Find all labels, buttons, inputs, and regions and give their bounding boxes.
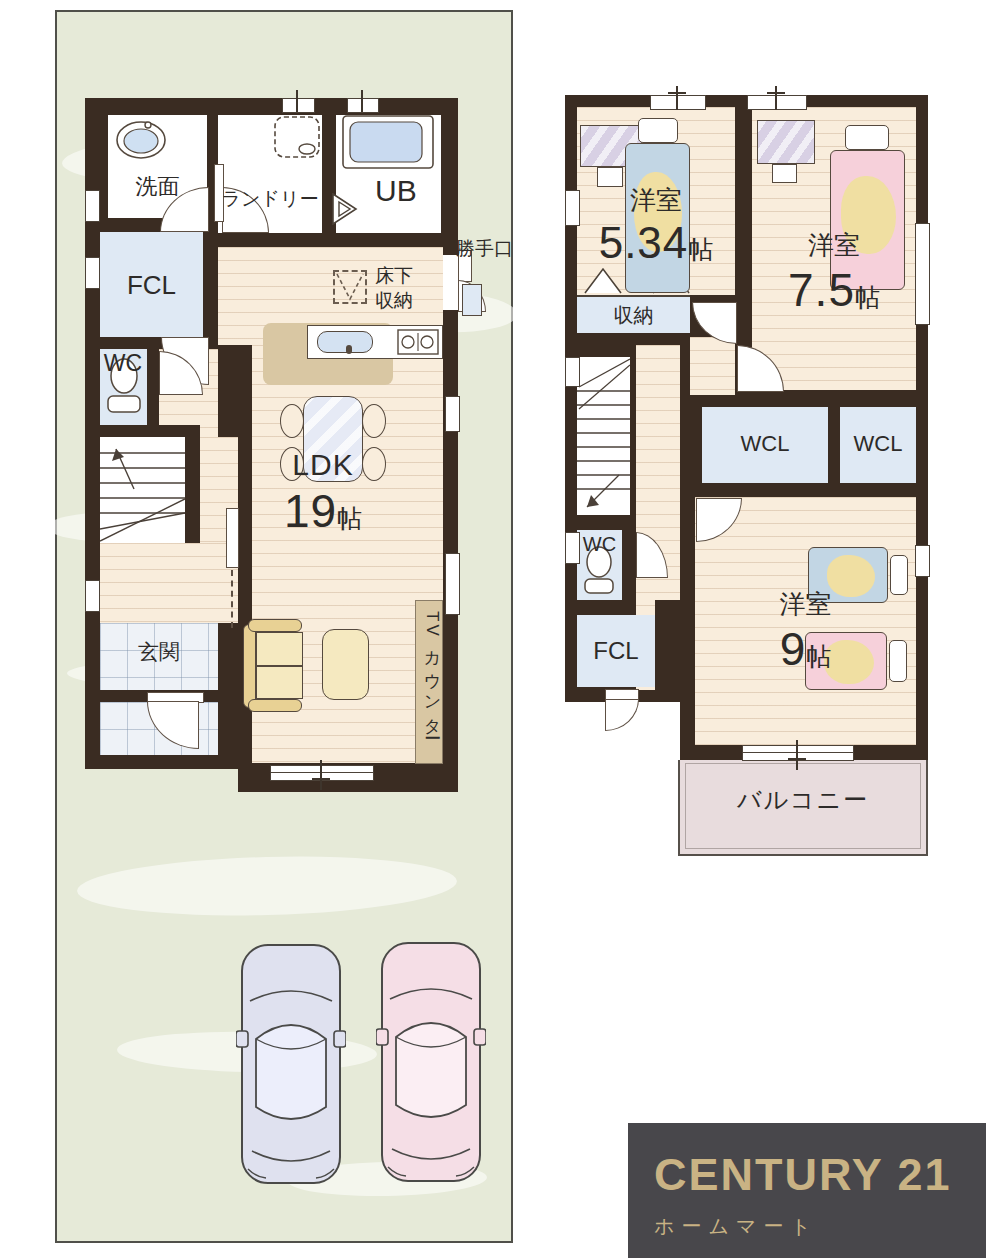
- fcl-label: FCL: [100, 270, 203, 301]
- window: [85, 190, 100, 222]
- desk: [757, 120, 815, 164]
- parked-car-pink: [376, 936, 486, 1188]
- window: [347, 98, 379, 113]
- ottoman: [322, 629, 369, 700]
- bedroom3-label: 洋室 9帖: [695, 587, 916, 676]
- window: [85, 257, 100, 289]
- window-center-line: [743, 752, 853, 753]
- back-door-label: 勝手口: [456, 236, 513, 262]
- bath-label: UB: [375, 174, 417, 208]
- laundry-label: ランドリー: [215, 186, 325, 212]
- second-floor-building: 洋室 5.34帖 洋室 7.5帖 収納 WCL WCL WC FCL 洋室 9帖: [565, 95, 928, 760]
- tv-counter: TVカウンター: [415, 600, 443, 764]
- window-tick: [320, 760, 322, 790]
- window: [915, 223, 930, 325]
- stairs-1f: [100, 437, 185, 543]
- wcl-right-label: WCL: [840, 431, 916, 457]
- sofa-seat-divider: [257, 665, 302, 667]
- window-tick: [676, 86, 678, 110]
- desk-chair: [772, 164, 797, 183]
- underfloor-storage-label: 床下 収納: [375, 264, 435, 313]
- back-door-gap: [443, 255, 458, 310]
- sofa-back: [243, 624, 256, 708]
- open-passage-dashed: [231, 570, 233, 628]
- window: [565, 357, 580, 387]
- window-tick: [668, 92, 686, 94]
- wall-segment: [655, 600, 680, 690]
- washbasin-icon: [115, 118, 167, 160]
- window: [747, 95, 807, 110]
- wc-label: WC: [93, 350, 153, 377]
- first-floor-building: 床下 収納 LDK 19帖 TVカウンター: [85, 98, 458, 792]
- window-tick: [775, 86, 777, 110]
- window-center-line: [271, 772, 373, 773]
- bathtub-icon: [342, 115, 434, 169]
- logo-company-text: ホームマート: [654, 1213, 986, 1240]
- balcony-label: バルコニー: [680, 784, 926, 816]
- washroom-label: 洗面: [108, 172, 207, 202]
- window-tick: [361, 90, 363, 112]
- underfloor-storage-hatch: [333, 270, 367, 304]
- back-door-step: [462, 284, 482, 316]
- window-tick: [767, 92, 785, 94]
- window: [445, 553, 460, 615]
- dining-chair: [280, 404, 304, 438]
- stairs-2f: [577, 357, 630, 515]
- century21-logo: CENTURY 21 ホームマート: [628, 1123, 986, 1258]
- window: [445, 396, 460, 432]
- stove-icon: [397, 329, 439, 355]
- bath-folding-door-icon: [332, 193, 358, 225]
- hallway: [100, 543, 238, 623]
- logo-brand-text: CENTURY 21: [654, 1149, 986, 1201]
- storage-label: 収納: [577, 302, 690, 329]
- kitchen-sink: [317, 331, 373, 353]
- sofa-armrest: [248, 619, 302, 632]
- sofa-armrest: [248, 699, 302, 712]
- entrance-label: 玄関: [100, 638, 218, 666]
- plot-patch: [85, 769, 238, 792]
- floor-plan-page: バルコニー: [0, 0, 986, 1258]
- tv-counter-label: TVカウンター: [421, 611, 444, 731]
- window-tick: [788, 758, 806, 760]
- window: [85, 580, 100, 612]
- washing-machine-icon: [273, 115, 321, 159]
- balcony: バルコニー: [678, 756, 928, 856]
- window: [650, 95, 706, 110]
- plot-texture-streak: [76, 852, 457, 920]
- bed-pillow: [845, 125, 889, 150]
- ldk-label: LDK 19帖: [253, 448, 393, 538]
- window: [915, 545, 930, 577]
- bed-pillow: [638, 118, 678, 143]
- ldk-sliding-door: [226, 508, 239, 568]
- parked-car-blue: [236, 938, 346, 1190]
- window: [282, 98, 315, 113]
- wc2-label: WC: [577, 533, 622, 556]
- dining-chair: [362, 404, 386, 438]
- bedroom1-label: 洋室 5.34帖: [577, 183, 735, 268]
- window-tick: [796, 740, 798, 770]
- kitchen-faucet: [346, 345, 352, 354]
- wall-segment: [147, 425, 200, 437]
- fcl2-label: FCL: [577, 637, 655, 665]
- window-tick: [312, 778, 330, 780]
- hallway-2f: [690, 337, 735, 395]
- bedroom2-label: 洋室 7.5帖: [752, 228, 916, 317]
- window-tick: [296, 90, 298, 112]
- sofa-seat: [256, 632, 303, 699]
- wcl-left-label: WCL: [702, 431, 828, 457]
